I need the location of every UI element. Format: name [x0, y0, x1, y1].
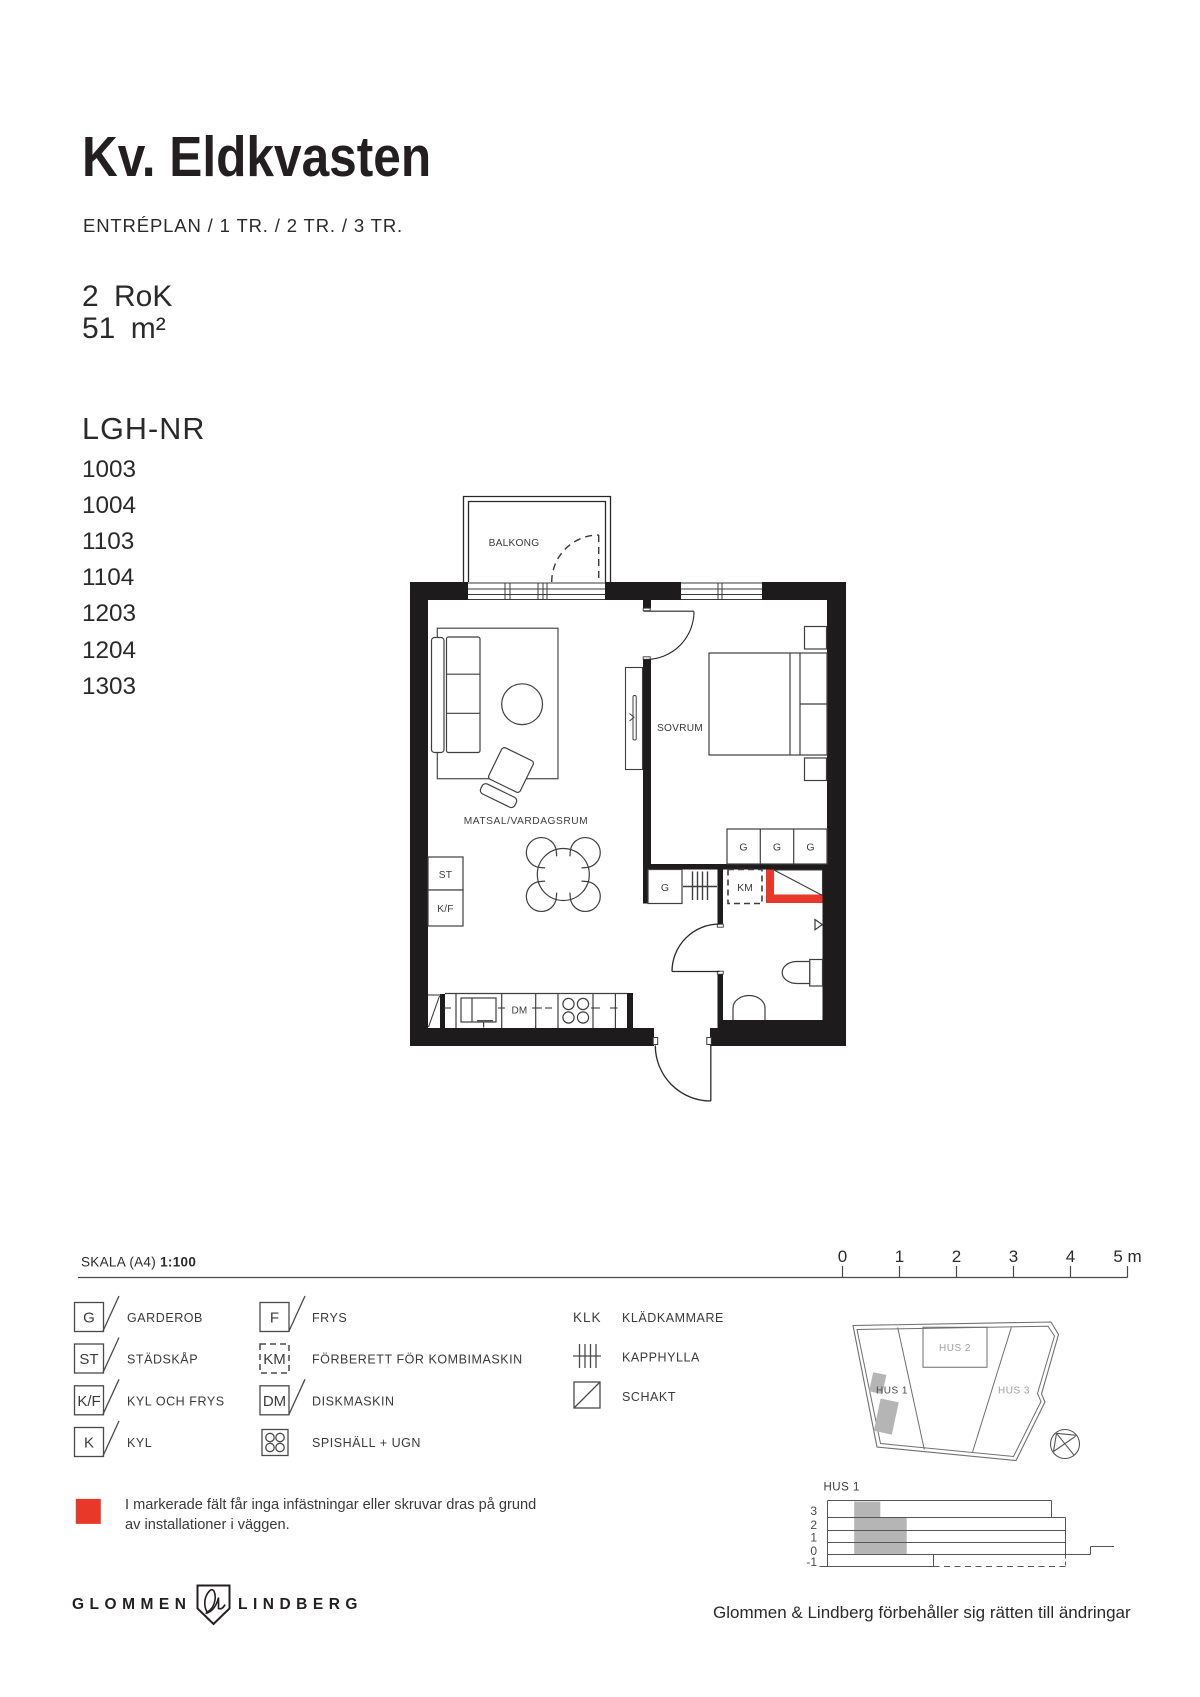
svg-text:G: G: [661, 882, 669, 894]
svg-text:-1: -1: [806, 1555, 817, 1569]
svg-text:3: 3: [1009, 1247, 1018, 1266]
svg-text:DM: DM: [512, 1006, 528, 1017]
svg-text:KAPPHYLLA: KAPPHYLLA: [622, 1351, 700, 1365]
svg-text:KLÄDKAMMARE: KLÄDKAMMARE: [622, 1311, 724, 1325]
svg-text:0: 0: [838, 1247, 847, 1266]
svg-text:ST: ST: [79, 1351, 98, 1368]
svg-text:K/F: K/F: [77, 1393, 100, 1410]
svg-text:5 m: 5 m: [1113, 1247, 1141, 1266]
svg-text:K: K: [84, 1435, 94, 1452]
svg-text:G: G: [773, 842, 781, 854]
svg-text:HUS 1: HUS 1: [876, 1386, 908, 1397]
svg-text:4: 4: [1066, 1247, 1075, 1266]
svg-text:K/F: K/F: [437, 904, 453, 915]
svg-text:STÄDSKÅP: STÄDSKÅP: [127, 1352, 198, 1367]
svg-text:KYL OCH FRYS: KYL OCH FRYS: [127, 1394, 225, 1408]
svg-text:1: 1: [895, 1247, 904, 1266]
svg-text:F: F: [270, 1310, 279, 1327]
svg-text:G: G: [739, 842, 747, 854]
svg-text:KM: KM: [263, 1351, 286, 1368]
svg-text:HUS 2: HUS 2: [939, 1343, 971, 1354]
svg-text:FRYS: FRYS: [312, 1311, 347, 1325]
svg-text:MATSAL/VARDAGSRUM: MATSAL/VARDAGSRUM: [464, 816, 588, 827]
svg-text:BALKONG: BALKONG: [489, 538, 540, 549]
svg-text:1: 1: [810, 1531, 817, 1545]
svg-text:DISKMASKIN: DISKMASKIN: [312, 1394, 395, 1408]
svg-text:GLOMMEN: GLOMMEN: [72, 1596, 191, 1613]
svg-text:2: 2: [952, 1247, 961, 1266]
svg-text:ST: ST: [439, 870, 452, 881]
svg-text:LINDBERG: LINDBERG: [238, 1596, 363, 1613]
svg-text:SPISHÄLL + UGN: SPISHÄLL + UGN: [312, 1436, 421, 1450]
svg-text:G: G: [806, 842, 814, 854]
svg-text:KLK: KLK: [573, 1310, 602, 1325]
svg-text:HUS 1: HUS 1: [824, 1482, 860, 1494]
svg-text:SKALA (A4) 1:100: SKALA (A4) 1:100: [81, 1255, 196, 1270]
svg-text:KM: KM: [737, 882, 753, 894]
svg-text:SOVRUM: SOVRUM: [657, 723, 703, 734]
svg-text:FÖRBERETT FÖR KOMBIMASKIN: FÖRBERETT FÖR KOMBIMASKIN: [312, 1353, 523, 1367]
svg-text:SCHAKT: SCHAKT: [622, 1390, 676, 1404]
svg-text:KYL: KYL: [127, 1436, 152, 1450]
svg-text:DM: DM: [263, 1393, 286, 1410]
svg-text:HUS 3: HUS 3: [998, 1386, 1030, 1397]
svg-text:3: 3: [810, 1504, 817, 1518]
svg-text:GARDEROB: GARDEROB: [127, 1311, 203, 1325]
svg-text:G: G: [83, 1310, 95, 1327]
